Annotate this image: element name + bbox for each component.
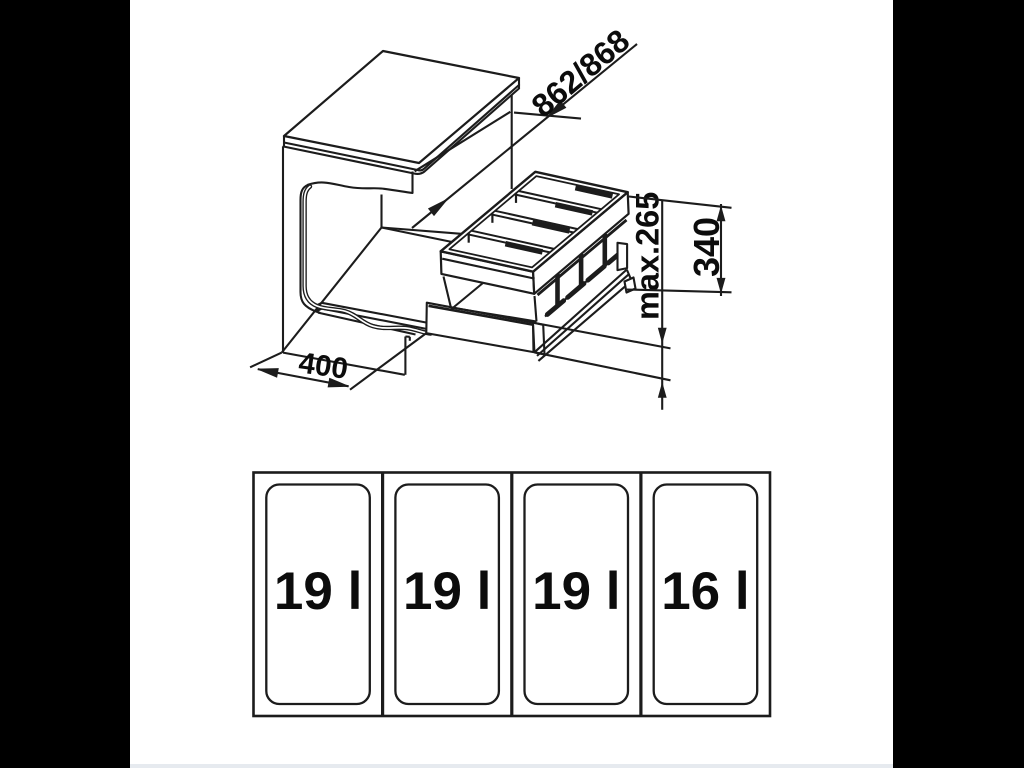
svg-text:19 l: 19 l [403,562,491,621]
svg-text:16 l: 16 l [661,562,749,621]
svg-text:862/868: 862/868 [525,22,637,124]
svg-text:max.265: max.265 [630,192,666,320]
svg-text:19 l: 19 l [532,562,620,621]
svg-text:340: 340 [686,217,727,277]
svg-text:19 l: 19 l [274,562,362,621]
svg-text:400: 400 [297,346,350,386]
